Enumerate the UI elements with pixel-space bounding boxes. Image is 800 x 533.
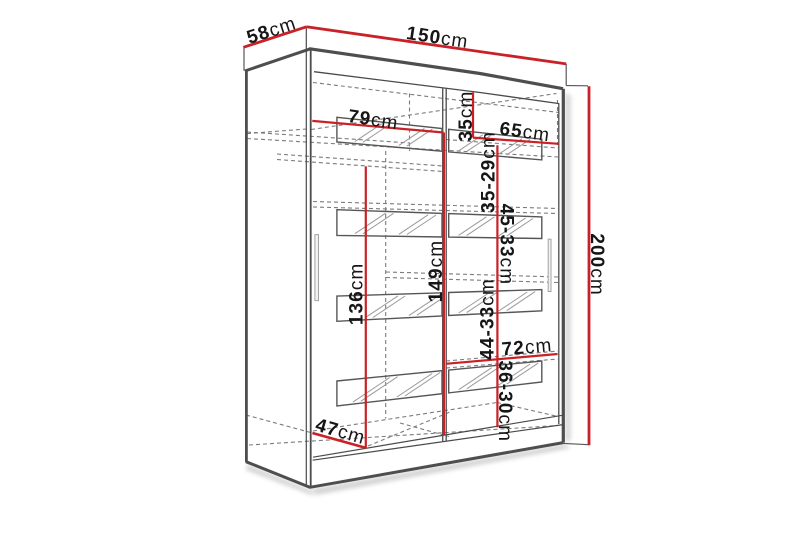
svg-text:149cm: 149cm [426, 240, 447, 303]
svg-text:200cm: 200cm [586, 233, 607, 296]
svg-text:65cm: 65cm [498, 119, 551, 147]
svg-text:47cm: 47cm [313, 415, 368, 449]
svg-text:44-33cm: 44-33cm [478, 278, 499, 360]
svg-text:35cm: 35cm [456, 91, 477, 142]
svg-text:136cm: 136cm [346, 263, 367, 326]
svg-text:45-33cm: 45-33cm [496, 204, 517, 286]
svg-text:150cm: 150cm [405, 23, 470, 53]
svg-text:36-30cm: 36-30cm [494, 360, 515, 442]
svg-text:58cm: 58cm [244, 13, 299, 49]
svg-text:72cm: 72cm [501, 335, 554, 360]
svg-text:79cm: 79cm [346, 106, 399, 134]
svg-text:35-29cm: 35-29cm [479, 131, 500, 213]
